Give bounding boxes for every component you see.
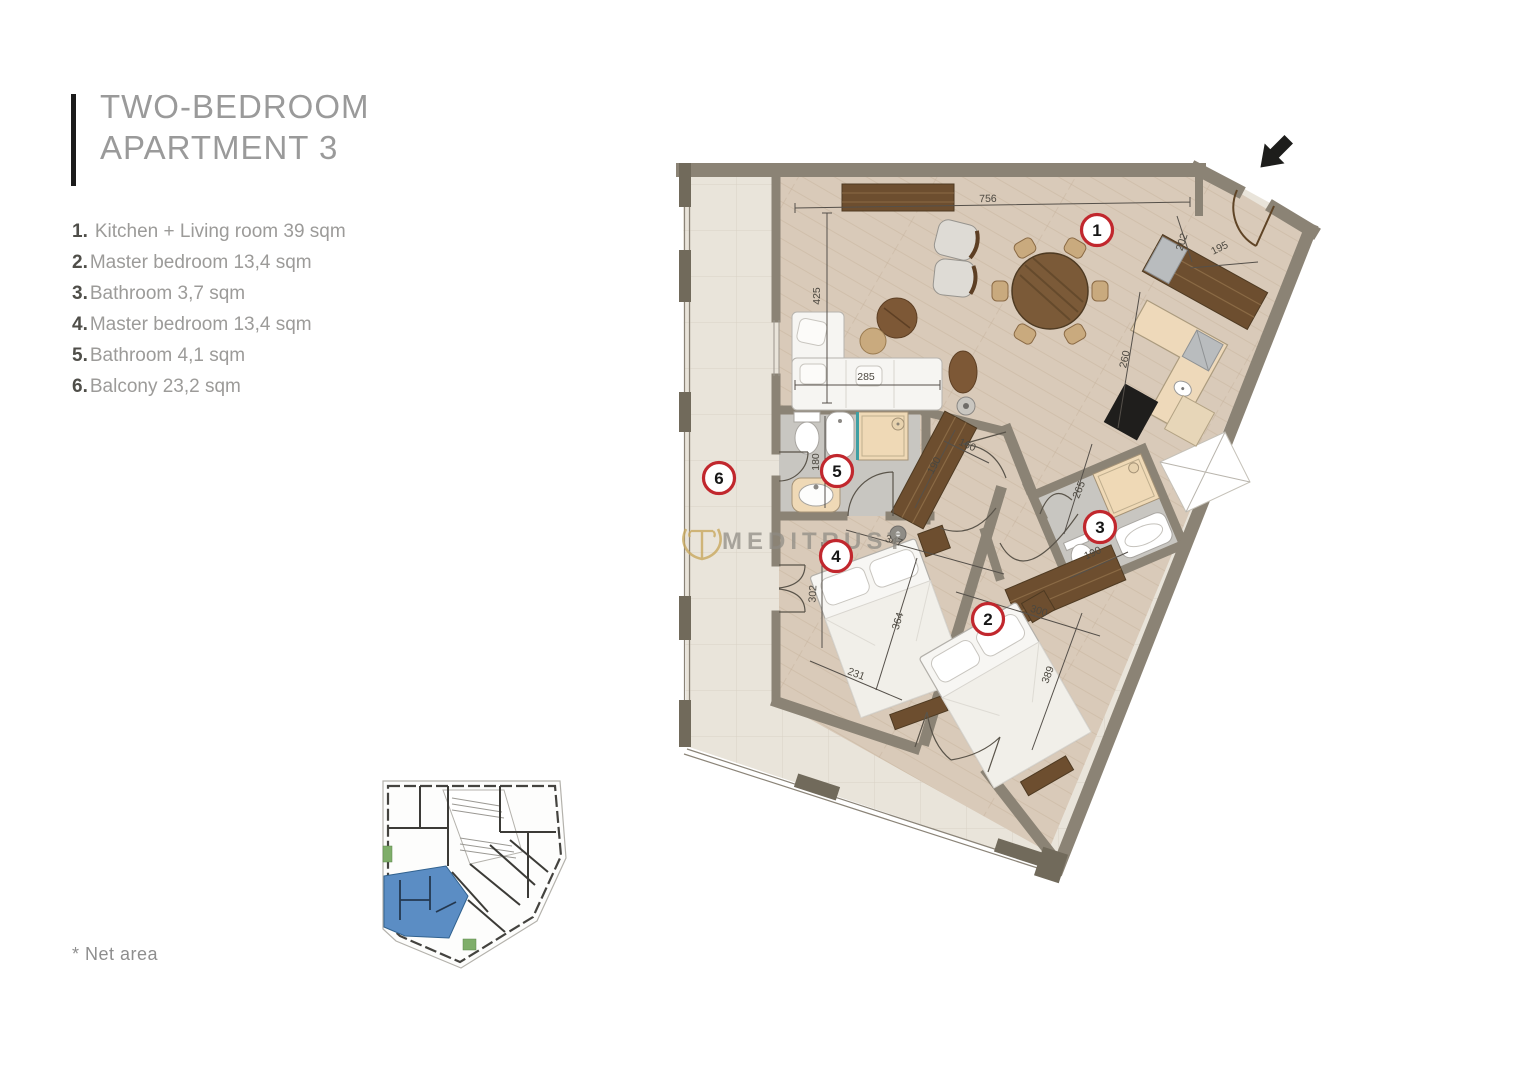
dimension-label: 425 [811,287,823,305]
floor-plan: 756 425 285 202 195 260 180 190 160 265 … [640,130,1340,950]
svg-text:3: 3 [1095,518,1104,537]
brochure-page: TWO-BEDROOM APARTMENT 3 1.Kitchen + Livi… [0,0,1528,1080]
net-area-note: * Net area [72,944,158,965]
legend-item: 4.Master bedroom 13,4 sqm [72,309,346,340]
key-plan-minimap [355,772,605,982]
svg-text:5: 5 [832,462,841,481]
legend-item: 5.Bathroom 4,1 sqm [72,340,346,371]
svg-text:4: 4 [831,547,841,566]
toilet-icon [794,412,820,422]
legend-item: 3.Bathroom 3,7 sqm [72,278,346,309]
dimension-label: 302 [807,585,820,603]
side-table-icon [949,351,977,393]
room-badge: 6 [704,463,735,494]
title-line-2: APARTMENT 3 [100,127,369,168]
dimension-label: 756 [979,193,997,205]
page-title: TWO-BEDROOM APARTMENT 3 [100,86,369,168]
room-badge: 4 [821,541,852,572]
room-badge: 1 [1082,215,1113,246]
bidet-icon [826,412,854,458]
room-badge: 3 [1085,512,1116,543]
svg-text:6: 6 [714,469,723,488]
elevator-marker [463,939,476,950]
room-badge: 2 [973,604,1004,635]
title-accent-bar [71,94,76,186]
armchair-icon [932,258,977,298]
room-legend: 1.Kitchen + Living room 39 sqm 2.Master … [72,216,346,402]
dimension-label: 285 [857,371,875,383]
svg-text:1: 1 [1092,221,1101,240]
title-line-1: TWO-BEDROOM [100,86,369,127]
elevator-marker [383,846,392,862]
legend-item: 2.Master bedroom 13,4 sqm [72,247,346,278]
room-badge: 5 [822,456,853,487]
entrance-arrow-icon [1251,130,1299,177]
legend-item: 1.Kitchen + Living room 39 sqm [72,216,346,247]
legend-item: 6.Balcony 23,2 sqm [72,371,346,402]
svg-text:2: 2 [983,610,992,629]
watermark-text: MEDITRUST [722,528,907,555]
